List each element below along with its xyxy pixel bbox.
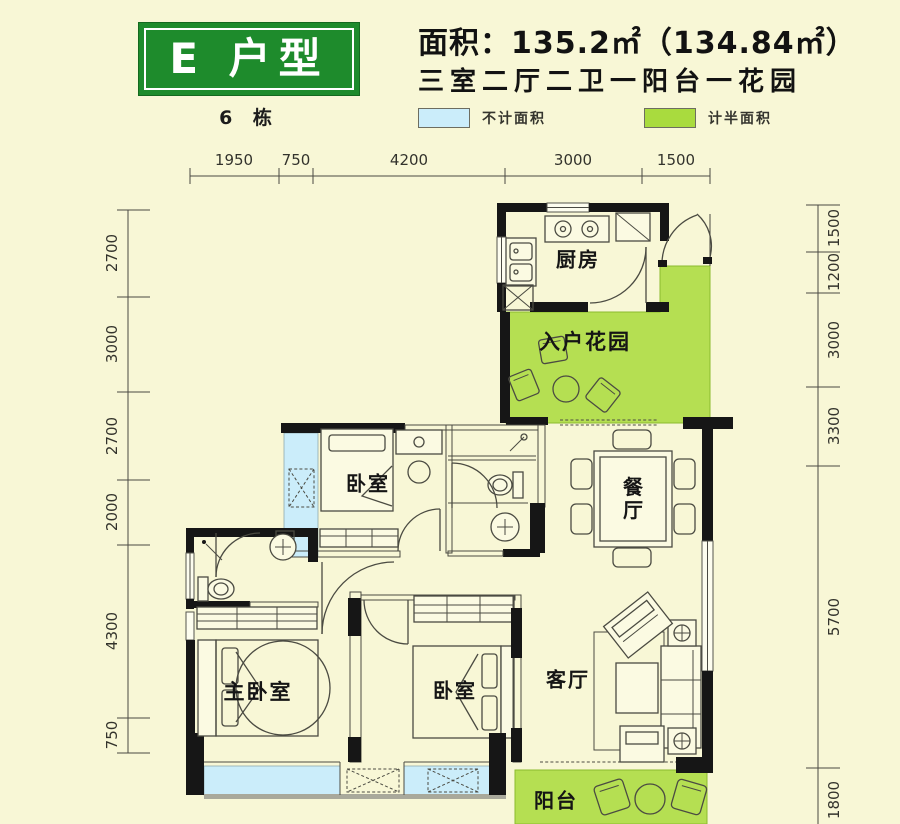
room-label-bedroom-top: 卧室 bbox=[346, 468, 390, 497]
bathroom-top bbox=[446, 425, 545, 557]
room-label-kitchen: 厨房 bbox=[556, 244, 600, 273]
dim-left-6: 750 bbox=[103, 721, 121, 750]
floorplan-page: E 户型 6 栋 面积：135.2㎡（134.84㎡） 三室二厅二卫一阳台一花园… bbox=[0, 0, 900, 824]
dim-left-5: 4300 bbox=[103, 612, 121, 650]
dim-right-1: 1500 bbox=[825, 209, 843, 247]
room-label-master-bedroom: 主卧室 bbox=[224, 676, 293, 706]
dim-top-4: 3000 bbox=[554, 151, 592, 169]
room-label-living: 客厅 bbox=[546, 664, 590, 693]
dim-top-5: 1500 bbox=[657, 151, 695, 169]
dim-left-2: 3000 bbox=[103, 325, 121, 363]
dim-right-3: 3000 bbox=[825, 321, 843, 359]
room-label-entry-garden: 入户花园 bbox=[539, 326, 631, 356]
room-label-bedroom-second: 卧室 bbox=[433, 675, 477, 704]
dim-left-3: 2700 bbox=[103, 417, 121, 455]
hallway-doors bbox=[322, 562, 408, 644]
dim-top-2: 750 bbox=[282, 151, 311, 169]
dim-left-4: 2000 bbox=[103, 493, 121, 531]
dim-top-1: 1950 bbox=[215, 151, 253, 169]
room-label-balcony: 阳台 bbox=[534, 785, 578, 814]
dim-right-2: 1200 bbox=[825, 253, 843, 291]
dim-right-6: 1800 bbox=[825, 781, 843, 819]
dim-right-4: 3300 bbox=[825, 407, 843, 445]
dim-right-5: 5700 bbox=[825, 598, 843, 636]
dim-top-3: 4200 bbox=[390, 151, 428, 169]
dim-left-1: 2700 bbox=[103, 234, 121, 272]
room-label-dining: 餐厅 bbox=[621, 476, 645, 522]
